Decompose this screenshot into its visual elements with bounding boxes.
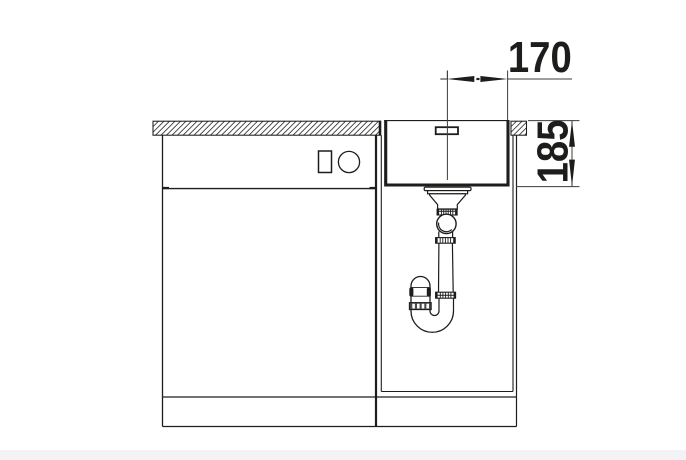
- svg-text:185: 185: [528, 120, 577, 184]
- svg-text:170: 170: [508, 33, 572, 82]
